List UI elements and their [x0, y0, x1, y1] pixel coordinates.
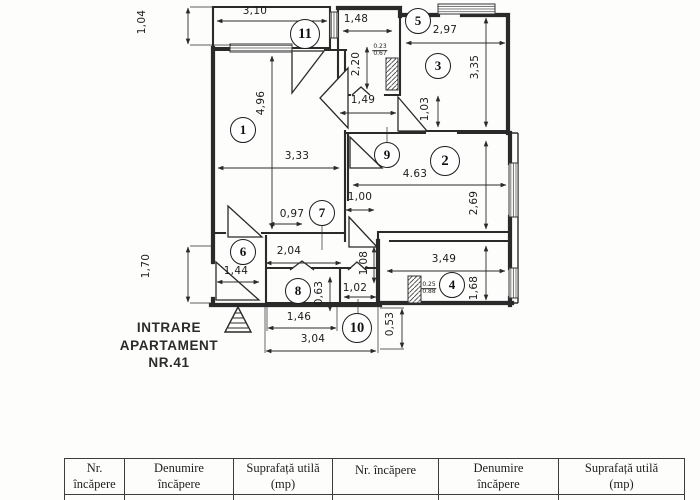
header-nr-incapere-left: Nr.încăpere: [65, 459, 125, 495]
dim-label-1-70: 1,70: [140, 254, 152, 279]
dim-label-0-97: 0,97: [280, 208, 305, 220]
dim-label-1-49: 1,49: [351, 94, 376, 106]
scanned-floor-plan-page: 1,04 3,10 1,48 2,97 2,20 4,96 1,49 1,03 …: [0, 0, 700, 500]
dim-label-1-00: 1,00: [348, 191, 373, 203]
table-partial-row: [65, 495, 685, 500]
header-suprafata-right: Suprafață utilă(mp): [559, 459, 685, 495]
room-number-5: 5: [405, 8, 431, 34]
header-denumire-left: Denumireîncăpere: [125, 459, 234, 495]
shaft-size-label-2: 0.25 0.88: [421, 282, 436, 296]
dim-label-2-69: 2,69: [468, 191, 480, 216]
dim-label-1-03: 1,03: [419, 97, 431, 122]
dim-label-3-35: 3,35: [469, 55, 481, 80]
entrance-caption-line3: NR.41: [104, 354, 234, 372]
room-number-1: 1: [230, 117, 256, 143]
dim-label-1-08: 1,08: [358, 251, 370, 276]
dim-label-2-04: 2,04: [277, 245, 302, 257]
room-number-9: 9: [374, 142, 400, 168]
entrance-caption-line2: APARTAMENT: [104, 337, 234, 355]
room-number-7: 7: [309, 200, 335, 226]
dim-label-1-44: 1,44: [224, 265, 249, 277]
dim-label-4-96: 4,96: [255, 91, 267, 116]
dim-label-4-63: 4.63: [403, 168, 428, 180]
dim-label-0-53: 0,53: [384, 312, 396, 337]
dim-label-2-20: 2,20: [350, 52, 362, 77]
table-header-row: Nr.încăpere Denumireîncăpere Suprafață u…: [65, 459, 685, 495]
dim-label-1-02: 1,02: [343, 282, 368, 294]
dim-label-3-10: 3,10: [243, 5, 268, 17]
header-denumire-right: Denumireîncăpere: [439, 459, 559, 495]
dim-label-1-48: 1,48: [344, 13, 369, 25]
dim-label-0-63: 0,63: [313, 281, 325, 306]
dim-label-1-68: 1,68: [468, 276, 480, 301]
header-suprafata-left: Suprafață utilă(mp): [234, 459, 333, 495]
room-number-3: 3: [425, 53, 451, 79]
entrance-caption-line1: INTRARE: [104, 319, 234, 337]
room-number-11: 11: [290, 19, 320, 49]
dim-label-1-46: 1,46: [287, 311, 312, 323]
header-nr-incapere-right: Nr. încăpere: [333, 459, 439, 495]
dim-label-3-04: 3,04: [301, 333, 326, 345]
room-schedule-table: Nr.încăpere Denumireîncăpere Suprafață u…: [64, 458, 685, 500]
shaft-1-bottom-value: 0.67: [372, 52, 387, 58]
shaft-size-label-1: 0.23 0.67: [372, 44, 387, 58]
dim-label-3-49: 3,49: [432, 253, 457, 265]
room-number-6: 6: [230, 239, 256, 265]
room-number-8: 8: [285, 278, 311, 304]
dim-label-2-97: 2,97: [433, 24, 458, 36]
shaft-2-bottom-value: 0.88: [421, 290, 436, 296]
dim-label-1-04: 1,04: [136, 10, 148, 35]
room-number-4: 4: [439, 272, 465, 298]
entrance-caption: INTRARE APARTAMENT NR.41: [104, 319, 234, 372]
room-number-10: 10: [342, 313, 372, 343]
dim-label-3-33: 3,33: [285, 150, 310, 162]
room-number-2: 2: [430, 146, 460, 176]
